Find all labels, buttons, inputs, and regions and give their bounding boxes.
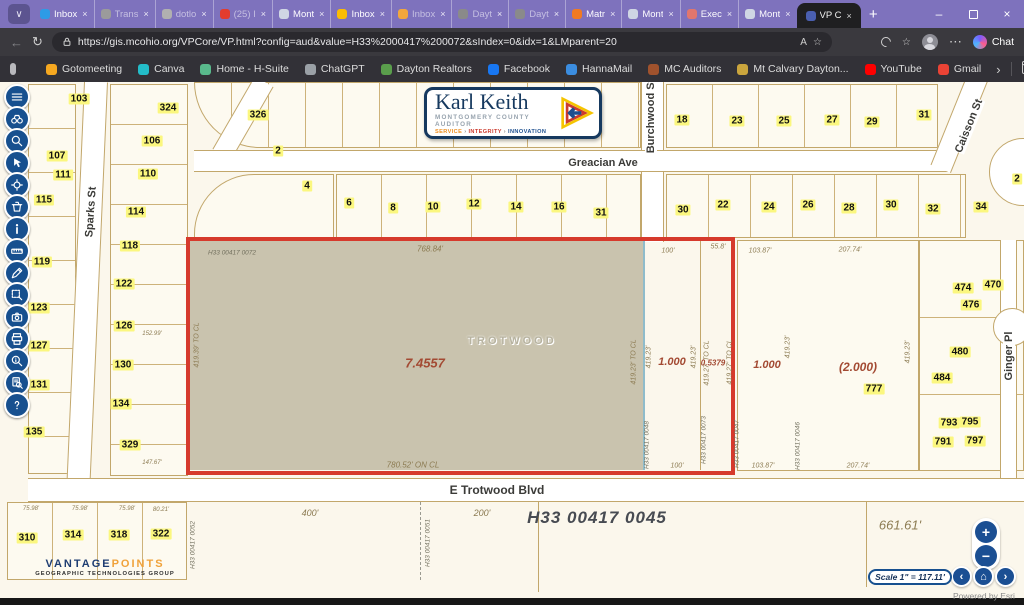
- parcel-number-label[interactable]: 791: [933, 437, 954, 448]
- window-controls: – ×: [922, 0, 1024, 28]
- tab-close-icon[interactable]: ×: [785, 9, 790, 19]
- parcel-id-label: H33 00417 0072: [208, 250, 256, 257]
- dimension-label: 207.74': [847, 463, 870, 470]
- bookmark-favicon: [566, 64, 577, 75]
- parcel-number-label[interactable]: 30: [883, 200, 898, 211]
- bookmark-favicon: [488, 64, 499, 75]
- print-icon: [10, 332, 24, 346]
- dimension-label: 419.23': [905, 341, 912, 364]
- zoom-in-button[interactable]: +: [975, 521, 997, 543]
- street-label: E Trotwood Blvd: [450, 483, 545, 497]
- auditor-subtitle: MONTGOMERY COUNTY AUDITOR: [435, 114, 554, 128]
- parcel-number-label[interactable]: 8: [388, 203, 398, 214]
- parcel-id-label: H33 00417 0047: [734, 420, 741, 468]
- bookmark-favicon: [938, 64, 949, 75]
- street-caisson-circle: [989, 138, 1024, 206]
- measure-icon: [10, 244, 24, 258]
- parcel-number-label[interactable]: 326: [248, 110, 269, 121]
- dimension-label: 207.74': [839, 247, 862, 254]
- bookmark-label: Mt Calvary Dayton...: [753, 63, 848, 75]
- tabs-host: Inbox×Trans×dotlo×(25) I×Mont×Inbox×Inbo…: [34, 0, 861, 28]
- tagline-integrity: INTEGRITY: [468, 129, 501, 135]
- parcel-number-label[interactable]: 131: [29, 380, 50, 391]
- find-binoculars-icon: [10, 112, 24, 126]
- parcel-number-label[interactable]: 2: [273, 146, 283, 157]
- parcel-id-label: H33 00417 0048: [644, 421, 651, 469]
- tab-label: Trans: [115, 9, 139, 20]
- bookmarks-right: › Other favorites: [996, 62, 1024, 77]
- url-field[interactable]: https://gis.mcohio.org/VPCore/VP.html?co…: [52, 32, 832, 52]
- parcel-number-label[interactable]: 470: [983, 280, 1004, 291]
- tab-strip: ∨ Inbox×Trans×dotlo×(25) I×Mont×Inbox×In…: [0, 0, 1024, 28]
- tagline-service: SERVICE: [435, 129, 462, 135]
- dimension-label: 80.21': [153, 507, 169, 513]
- tab-favicon: [398, 9, 408, 19]
- tab-favicon: [220, 9, 230, 19]
- parcel-number-label[interactable]: 6: [344, 198, 354, 209]
- dimension-label: 780.52' ON CL: [387, 461, 440, 470]
- parcel-number-label[interactable]: 480: [950, 347, 971, 358]
- dimension-label: 400': [302, 508, 319, 518]
- parcel-number-label[interactable]: 103: [69, 94, 90, 105]
- select-icon: [10, 288, 24, 302]
- favorite-star-icon[interactable]: ☆: [813, 37, 822, 48]
- parcel-number-label[interactable]: 322: [151, 529, 172, 540]
- tab-label: dotlo: [176, 9, 197, 20]
- bookmark-item[interactable]: Home - H-Suite: [200, 63, 288, 75]
- bookmark-item[interactable]: MC Auditors: [648, 63, 721, 75]
- bookmark-item[interactable]: Gmail: [938, 63, 981, 75]
- parcel-number-label[interactable]: 310: [17, 533, 38, 544]
- dimension-label: 152.99': [142, 331, 162, 337]
- tab-favicon: [458, 9, 468, 19]
- parcel-id-label: H33 00417 0073: [701, 416, 708, 464]
- parcel-number-label[interactable]: 23: [729, 116, 744, 127]
- copilot-icon: [973, 35, 987, 49]
- browser-tab[interactable]: dotlo×: [155, 0, 213, 28]
- dimension-label: 103.87': [752, 463, 775, 470]
- auditor-logo: Karl Keith MONTGOMERY COUNTY AUDITOR SER…: [424, 87, 602, 139]
- browser-tab[interactable]: Inbox×: [330, 0, 391, 28]
- map-toolbar: [4, 84, 30, 418]
- next-extent-button[interactable]: ›: [995, 566, 1016, 587]
- browser-tab[interactable]: Trans×: [94, 0, 155, 28]
- address-bar-actions: ☆ ⋯ Chat: [881, 34, 1014, 50]
- tab-close-icon[interactable]: ×: [497, 9, 502, 19]
- tab-search-button[interactable]: ∨: [8, 4, 30, 24]
- parcel-number-label[interactable]: 106: [142, 136, 163, 147]
- maximize-icon: [969, 10, 978, 19]
- chat-button[interactable]: Chat: [973, 35, 1014, 49]
- bookmark-favicon: [737, 64, 748, 75]
- parcel-number-label[interactable]: 25: [776, 116, 791, 127]
- parcel-number-label[interactable]: 793: [939, 418, 960, 429]
- auditor-logo-text: Karl Keith MONTGOMERY COUNTY AUDITOR SER…: [435, 91, 554, 135]
- parcel-number-label[interactable]: 28: [841, 203, 856, 214]
- parcel-block: [194, 174, 334, 238]
- parcel-number-label[interactable]: 135: [24, 427, 45, 438]
- parcel-number-label[interactable]: 16: [551, 202, 566, 213]
- parcel-number-label[interactable]: 324: [158, 103, 179, 114]
- bookmark-label: ChatGPT: [321, 63, 365, 75]
- tagline-separator: ›: [464, 129, 466, 135]
- parcel-block: [737, 240, 919, 471]
- dimension-label: 55.8': [711, 244, 726, 251]
- tab-close-icon[interactable]: ×: [261, 9, 266, 19]
- parcel-number-label[interactable]: 474: [953, 283, 974, 294]
- gis-map-canvas[interactable]: Sparks StGreacian AveBurchwood StCaisson…: [0, 82, 1024, 605]
- vantage-points-logo: VANTAGEPOINTS GEOGRAPHIC TECHNOLOGIES GR…: [30, 558, 180, 577]
- bookmark-favicon: [46, 64, 57, 75]
- tab-label: Dayt: [529, 9, 549, 20]
- tab-favicon: [162, 9, 172, 19]
- parcel-number-label[interactable]: 134: [111, 399, 132, 410]
- tab-favicon: [101, 9, 111, 19]
- parcel-number-label[interactable]: 126: [114, 321, 135, 332]
- tab-label: Mont: [759, 9, 780, 20]
- acreage-label: 7.4557: [405, 356, 445, 371]
- address-bar: ← ↻ https://gis.mcohio.org/VPCore/VP.htm…: [0, 28, 1024, 56]
- bookmark-label: HannaMail: [582, 63, 632, 75]
- tab-close-icon[interactable]: ×: [554, 9, 559, 19]
- dimension-label: 75.98': [119, 506, 135, 512]
- dimension-label: 100': [670, 463, 683, 470]
- tab-close-icon[interactable]: ×: [201, 9, 206, 19]
- profile-avatar[interactable]: [922, 34, 938, 50]
- parcel-number-label[interactable]: 118: [120, 241, 140, 252]
- zoom-search-icon: [10, 134, 24, 148]
- parcel-number-label[interactable]: 777: [864, 384, 885, 395]
- street-label: Ginger Pl: [1003, 332, 1015, 381]
- parcel-number-label[interactable]: 318: [109, 530, 130, 541]
- tab-close-icon[interactable]: ×: [727, 9, 732, 19]
- tab-close-icon[interactable]: ×: [440, 9, 445, 19]
- bookmarks-bar: GotomeetingCanvaHome - H-SuiteChatGPTDay…: [0, 56, 1024, 82]
- browser-tab[interactable]: Inbox×: [391, 0, 452, 28]
- parcel-number-label[interactable]: 26: [800, 200, 815, 211]
- bookmarks-host: GotomeetingCanvaHome - H-SuiteChatGPTDay…: [46, 63, 981, 75]
- parcel-number-label[interactable]: 329: [120, 440, 141, 451]
- zoom-control: + −: [972, 518, 1000, 570]
- parcel-number-label[interactable]: 27: [824, 115, 839, 126]
- browser-tab[interactable]: Matr×: [565, 0, 621, 28]
- locate-icon: [10, 178, 24, 192]
- parcel-number-label[interactable]: 797: [965, 436, 986, 447]
- dimension-label: 768.84': [417, 245, 443, 254]
- bookmark-label: Dayton Realtors: [397, 63, 472, 75]
- parcel-number-label[interactable]: 110: [138, 169, 158, 180]
- vantage-brand-1: VANTAGE: [45, 558, 111, 570]
- parcel-number-label[interactable]: 476: [961, 300, 982, 311]
- tab-favicon: [628, 9, 638, 19]
- tab-label: Matr: [586, 9, 605, 20]
- acreage-label: (2.000): [839, 360, 877, 374]
- tab-favicon: [279, 9, 289, 19]
- dimension-label: 419.23': [691, 346, 698, 369]
- tab-label: Inbox: [412, 9, 435, 20]
- parcel-number-label[interactable]: 115: [34, 195, 54, 206]
- close-button[interactable]: ×: [990, 0, 1024, 28]
- search-results-icon: [10, 376, 24, 390]
- parcel-id-label: H33 00417 0046: [795, 422, 802, 470]
- bookmark-item[interactable]: Gotomeeting: [46, 63, 122, 75]
- bookmark-item[interactable]: YouTube: [865, 63, 922, 75]
- parcel-id-label: H33 00417 0045: [527, 508, 667, 528]
- parcel-number-label[interactable]: 29: [864, 117, 879, 128]
- parcel-number-label[interactable]: 4: [302, 181, 312, 192]
- tab-favicon: [745, 9, 755, 19]
- menu-icon: [10, 90, 24, 104]
- new-tab-button[interactable]: +: [869, 6, 878, 23]
- bookmark-favicon: [200, 64, 211, 75]
- dimension-label: 75.98': [72, 506, 88, 512]
- tab-label: (25) I: [234, 9, 256, 20]
- dimension-label: 200': [474, 508, 491, 518]
- selected-parcel-outline: [186, 237, 735, 475]
- dimension-label: 103.87': [749, 248, 772, 255]
- parcel-number-label[interactable]: 31: [916, 110, 931, 121]
- tab-favicon: [806, 11, 816, 21]
- browser-tab[interactable]: (25) I×: [213, 0, 272, 28]
- parcel-id-label: H33 00417 0051: [425, 519, 432, 567]
- scale-indicator: Scale 1" = 117.11': [868, 569, 952, 585]
- sidebar-toggle-icon[interactable]: [10, 63, 16, 75]
- parcel-block: [336, 174, 641, 238]
- bookmark-item[interactable]: ChatGPT: [305, 63, 365, 75]
- parcel-number-label[interactable]: 32: [925, 204, 940, 215]
- info-icon: [10, 222, 24, 236]
- browser-tab[interactable]: Mont×: [738, 0, 796, 28]
- tagline-separator: ›: [504, 129, 506, 135]
- parcel-number-label[interactable]: 10: [425, 202, 440, 213]
- city-label: TROTWOOD: [467, 335, 556, 347]
- tab-label: Inbox: [351, 9, 374, 20]
- bookmark-favicon: [381, 64, 392, 75]
- tab-close-icon[interactable]: ×: [610, 9, 615, 19]
- bookmark-label: Gmail: [954, 63, 981, 75]
- dimension-label: 419.23' TO CL: [631, 339, 638, 384]
- parcel-number-label[interactable]: 123: [29, 303, 50, 314]
- back-button[interactable]: ←: [10, 35, 23, 50]
- divider: [1011, 62, 1012, 76]
- acreage-label: 1.000: [658, 356, 686, 368]
- dimension-label: 419.23': [785, 336, 792, 359]
- browser-tab[interactable]: Dayt×: [451, 0, 508, 28]
- tab-label: Exec: [701, 9, 722, 20]
- browser-tab[interactable]: Inbox×: [34, 0, 94, 28]
- url-text: https://gis.mcohio.org/VPCore/VP.html?co…: [78, 36, 794, 48]
- auditor-tagline: SERVICE › INTEGRITY › INNOVATION: [435, 129, 554, 135]
- tab-label: Mont: [642, 9, 663, 20]
- parcel-number-label[interactable]: 18: [674, 115, 689, 126]
- pointer-icon: [10, 156, 24, 170]
- tab-close-icon[interactable]: ×: [668, 9, 673, 19]
- bookmark-item[interactable]: Canva: [138, 63, 184, 75]
- parcel-number-label[interactable]: 2: [1012, 174, 1022, 185]
- previous-extent-button[interactable]: ‹: [951, 566, 972, 587]
- parcel-number-label[interactable]: 114: [126, 207, 146, 218]
- tab-close-icon[interactable]: ×: [319, 9, 324, 19]
- esri-attribution: Powered by Esri: [953, 591, 1015, 601]
- bookmark-item[interactable]: Dayton Realtors: [381, 63, 472, 75]
- parcel-number-label[interactable]: 107: [47, 151, 68, 162]
- street-label: Burchwood St: [645, 82, 657, 153]
- bookmark-favicon: [138, 64, 149, 75]
- street-label: Greacian Ave: [568, 157, 638, 169]
- parcel-number-label[interactable]: 484: [932, 373, 953, 384]
- acreage-label: 0.5379: [701, 359, 725, 368]
- tab-favicon: [687, 9, 697, 19]
- parcel-number-label[interactable]: 122: [114, 279, 135, 290]
- parcel-number-label[interactable]: 22: [715, 200, 730, 211]
- tab-favicon: [337, 9, 347, 19]
- auditor-logo-mark: [560, 95, 594, 131]
- tab-label: Inbox: [54, 9, 77, 20]
- tab-favicon: [515, 9, 525, 19]
- tab-favicon: [40, 9, 50, 19]
- browser-tab[interactable]: Mont×: [621, 0, 679, 28]
- browser-essentials-icon[interactable]: [879, 35, 893, 49]
- tab-label: VP C: [820, 10, 842, 21]
- maximize-button[interactable]: [956, 0, 990, 28]
- tab-label: Dayt: [472, 9, 492, 20]
- bookmark-favicon: [305, 64, 316, 75]
- tab-close-icon[interactable]: ×: [847, 11, 852, 21]
- tagline-innovation: INNOVATION: [508, 129, 546, 135]
- bookmark-label: Home - H-Suite: [216, 63, 288, 75]
- vantage-brand: VANTAGEPOINTS: [30, 558, 180, 570]
- bookmark-item[interactable]: HannaMail: [566, 63, 632, 75]
- refresh-button[interactable]: ↻: [32, 34, 43, 50]
- help-button[interactable]: [4, 392, 30, 418]
- browser-tab[interactable]: Dayt×: [508, 0, 565, 28]
- minimize-button[interactable]: –: [922, 0, 956, 28]
- dimension-label: 75.98': [23, 506, 39, 512]
- tab-close-icon[interactable]: ×: [82, 9, 87, 19]
- tab-label: Mont: [293, 9, 314, 20]
- bookmark-item[interactable]: Facebook: [488, 63, 550, 75]
- window-bottom-edge: [0, 598, 1024, 605]
- street-caisson: [931, 82, 989, 173]
- tab-favicon: [572, 9, 582, 19]
- vantage-subtitle: GEOGRAPHIC TECHNOLOGIES GROUP: [30, 571, 180, 577]
- bookmark-item[interactable]: Mt Calvary Dayton...: [737, 63, 848, 75]
- bookmark-label: YouTube: [881, 63, 922, 75]
- dimension-label: 419.27' TO CL: [727, 339, 734, 384]
- browser-tab[interactable]: Exec×: [680, 0, 738, 28]
- lock-icon: [62, 37, 72, 47]
- zoom-out-button[interactable]: −: [975, 545, 997, 567]
- bookmark-label: Facebook: [504, 63, 550, 75]
- bookmarks-overflow-chevron[interactable]: ›: [996, 62, 1000, 77]
- extent-nav: ‹ ⌂ ›: [951, 566, 1016, 587]
- parcel-number-label[interactable]: 119: [32, 257, 52, 268]
- dimension-label: 100': [661, 248, 674, 255]
- parcel-line-dashed: [420, 502, 421, 580]
- parcel-number-label[interactable]: 111: [53, 170, 73, 181]
- chat-label: Chat: [992, 36, 1014, 48]
- parcel-number-label[interactable]: 12: [466, 199, 481, 210]
- bookmark-label: Gotomeeting: [62, 63, 122, 75]
- dimension-label: 419.39' TO CL: [194, 322, 201, 367]
- tab-close-icon[interactable]: ×: [380, 9, 385, 19]
- dimension-label: 147.67': [142, 460, 162, 466]
- magnify-info-icon: [10, 354, 24, 368]
- read-aloud-icon[interactable]: A: [800, 37, 807, 48]
- bookmark-favicon: [648, 64, 659, 75]
- bookmark-favicon: [865, 64, 876, 75]
- parcel-id-label: H33 00417 0052: [190, 521, 197, 569]
- help-icon: [10, 398, 24, 412]
- bookmark-label: Canva: [154, 63, 184, 75]
- screenshot-icon: [10, 310, 24, 324]
- browser-tab[interactable]: VP C×: [797, 3, 861, 28]
- parcel-number-label[interactable]: 795: [960, 417, 981, 428]
- parcel-number-label[interactable]: 24: [761, 202, 776, 213]
- parcel-line: [866, 502, 867, 587]
- auditor-name: Karl Keith: [435, 91, 554, 113]
- favorites-bar-icon[interactable]: ☆: [902, 37, 911, 48]
- parcel-block: [666, 84, 938, 148]
- parcel-number-label[interactable]: 127: [29, 341, 50, 352]
- parcel-number-label[interactable]: 30: [675, 205, 690, 216]
- tab-close-icon[interactable]: ×: [143, 9, 148, 19]
- parcel-number-label[interactable]: 314: [63, 530, 84, 541]
- browser-window: ∨ Inbox×Trans×dotlo×(25) I×Mont×Inbox×In…: [0, 0, 1024, 605]
- parcel-number-label[interactable]: 31: [593, 208, 608, 219]
- parcel-number-label[interactable]: 130: [113, 360, 134, 371]
- browser-tab[interactable]: Mont×: [272, 0, 330, 28]
- parcel-number-label[interactable]: 14: [508, 202, 523, 213]
- acreage-label: 1.000: [753, 359, 781, 371]
- vantage-brand-2: POINTS: [112, 558, 165, 570]
- erase-icon: [10, 200, 24, 214]
- parcel-number-label[interactable]: 34: [973, 202, 988, 213]
- more-menu-icon[interactable]: ⋯: [949, 34, 962, 50]
- home-extent-button[interactable]: ⌂: [973, 566, 994, 587]
- parcel-block: [666, 174, 966, 238]
- bookmark-label: MC Auditors: [664, 63, 721, 75]
- dimension-label: 419.23': [646, 346, 653, 369]
- dimension-label: 661.61': [879, 518, 921, 533]
- draw-icon: [10, 266, 24, 280]
